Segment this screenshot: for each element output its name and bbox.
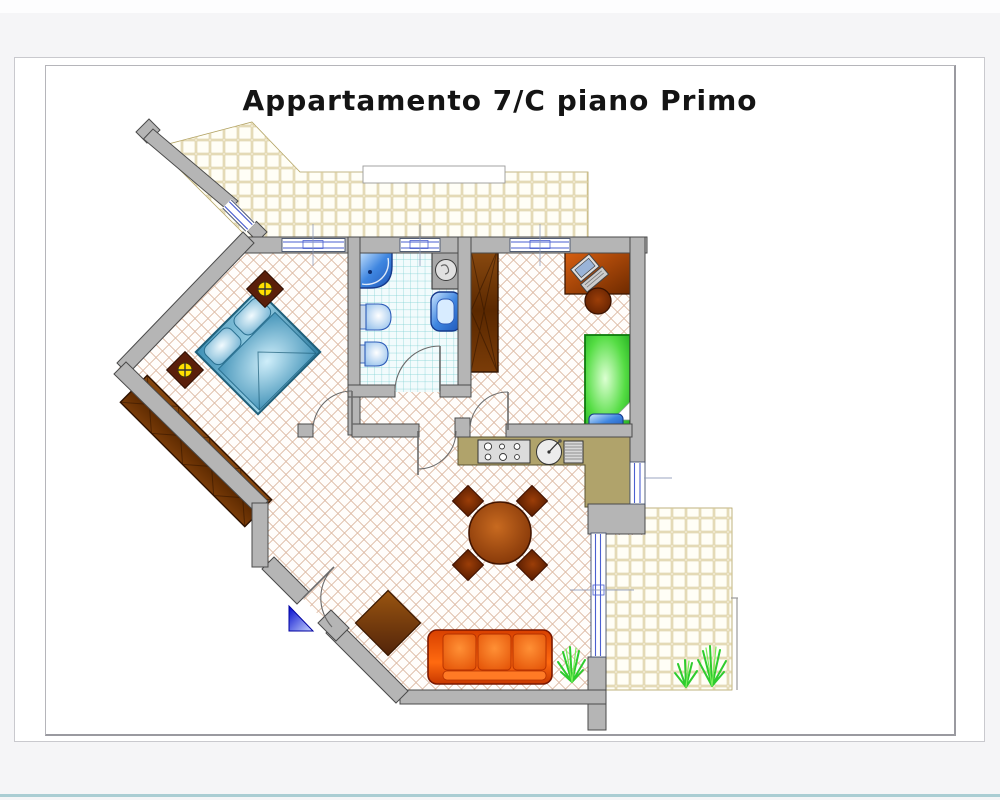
single-bed bbox=[585, 335, 630, 432]
stove bbox=[478, 440, 530, 463]
french-window bbox=[591, 533, 606, 657]
bidet bbox=[359, 342, 388, 366]
window bbox=[630, 462, 645, 504]
washbasin bbox=[431, 292, 461, 331]
shower bbox=[358, 251, 392, 288]
floor-plan bbox=[0, 0, 1000, 800]
washing-machine bbox=[432, 251, 460, 289]
sofa bbox=[428, 630, 552, 684]
desk-chair bbox=[585, 288, 611, 314]
top-terrace bbox=[157, 122, 588, 240]
toilet bbox=[359, 304, 391, 330]
north-arrow-icon bbox=[289, 606, 313, 631]
terrace-railing bbox=[363, 166, 505, 183]
window bbox=[282, 239, 345, 252]
office-wardrobe bbox=[470, 250, 498, 372]
